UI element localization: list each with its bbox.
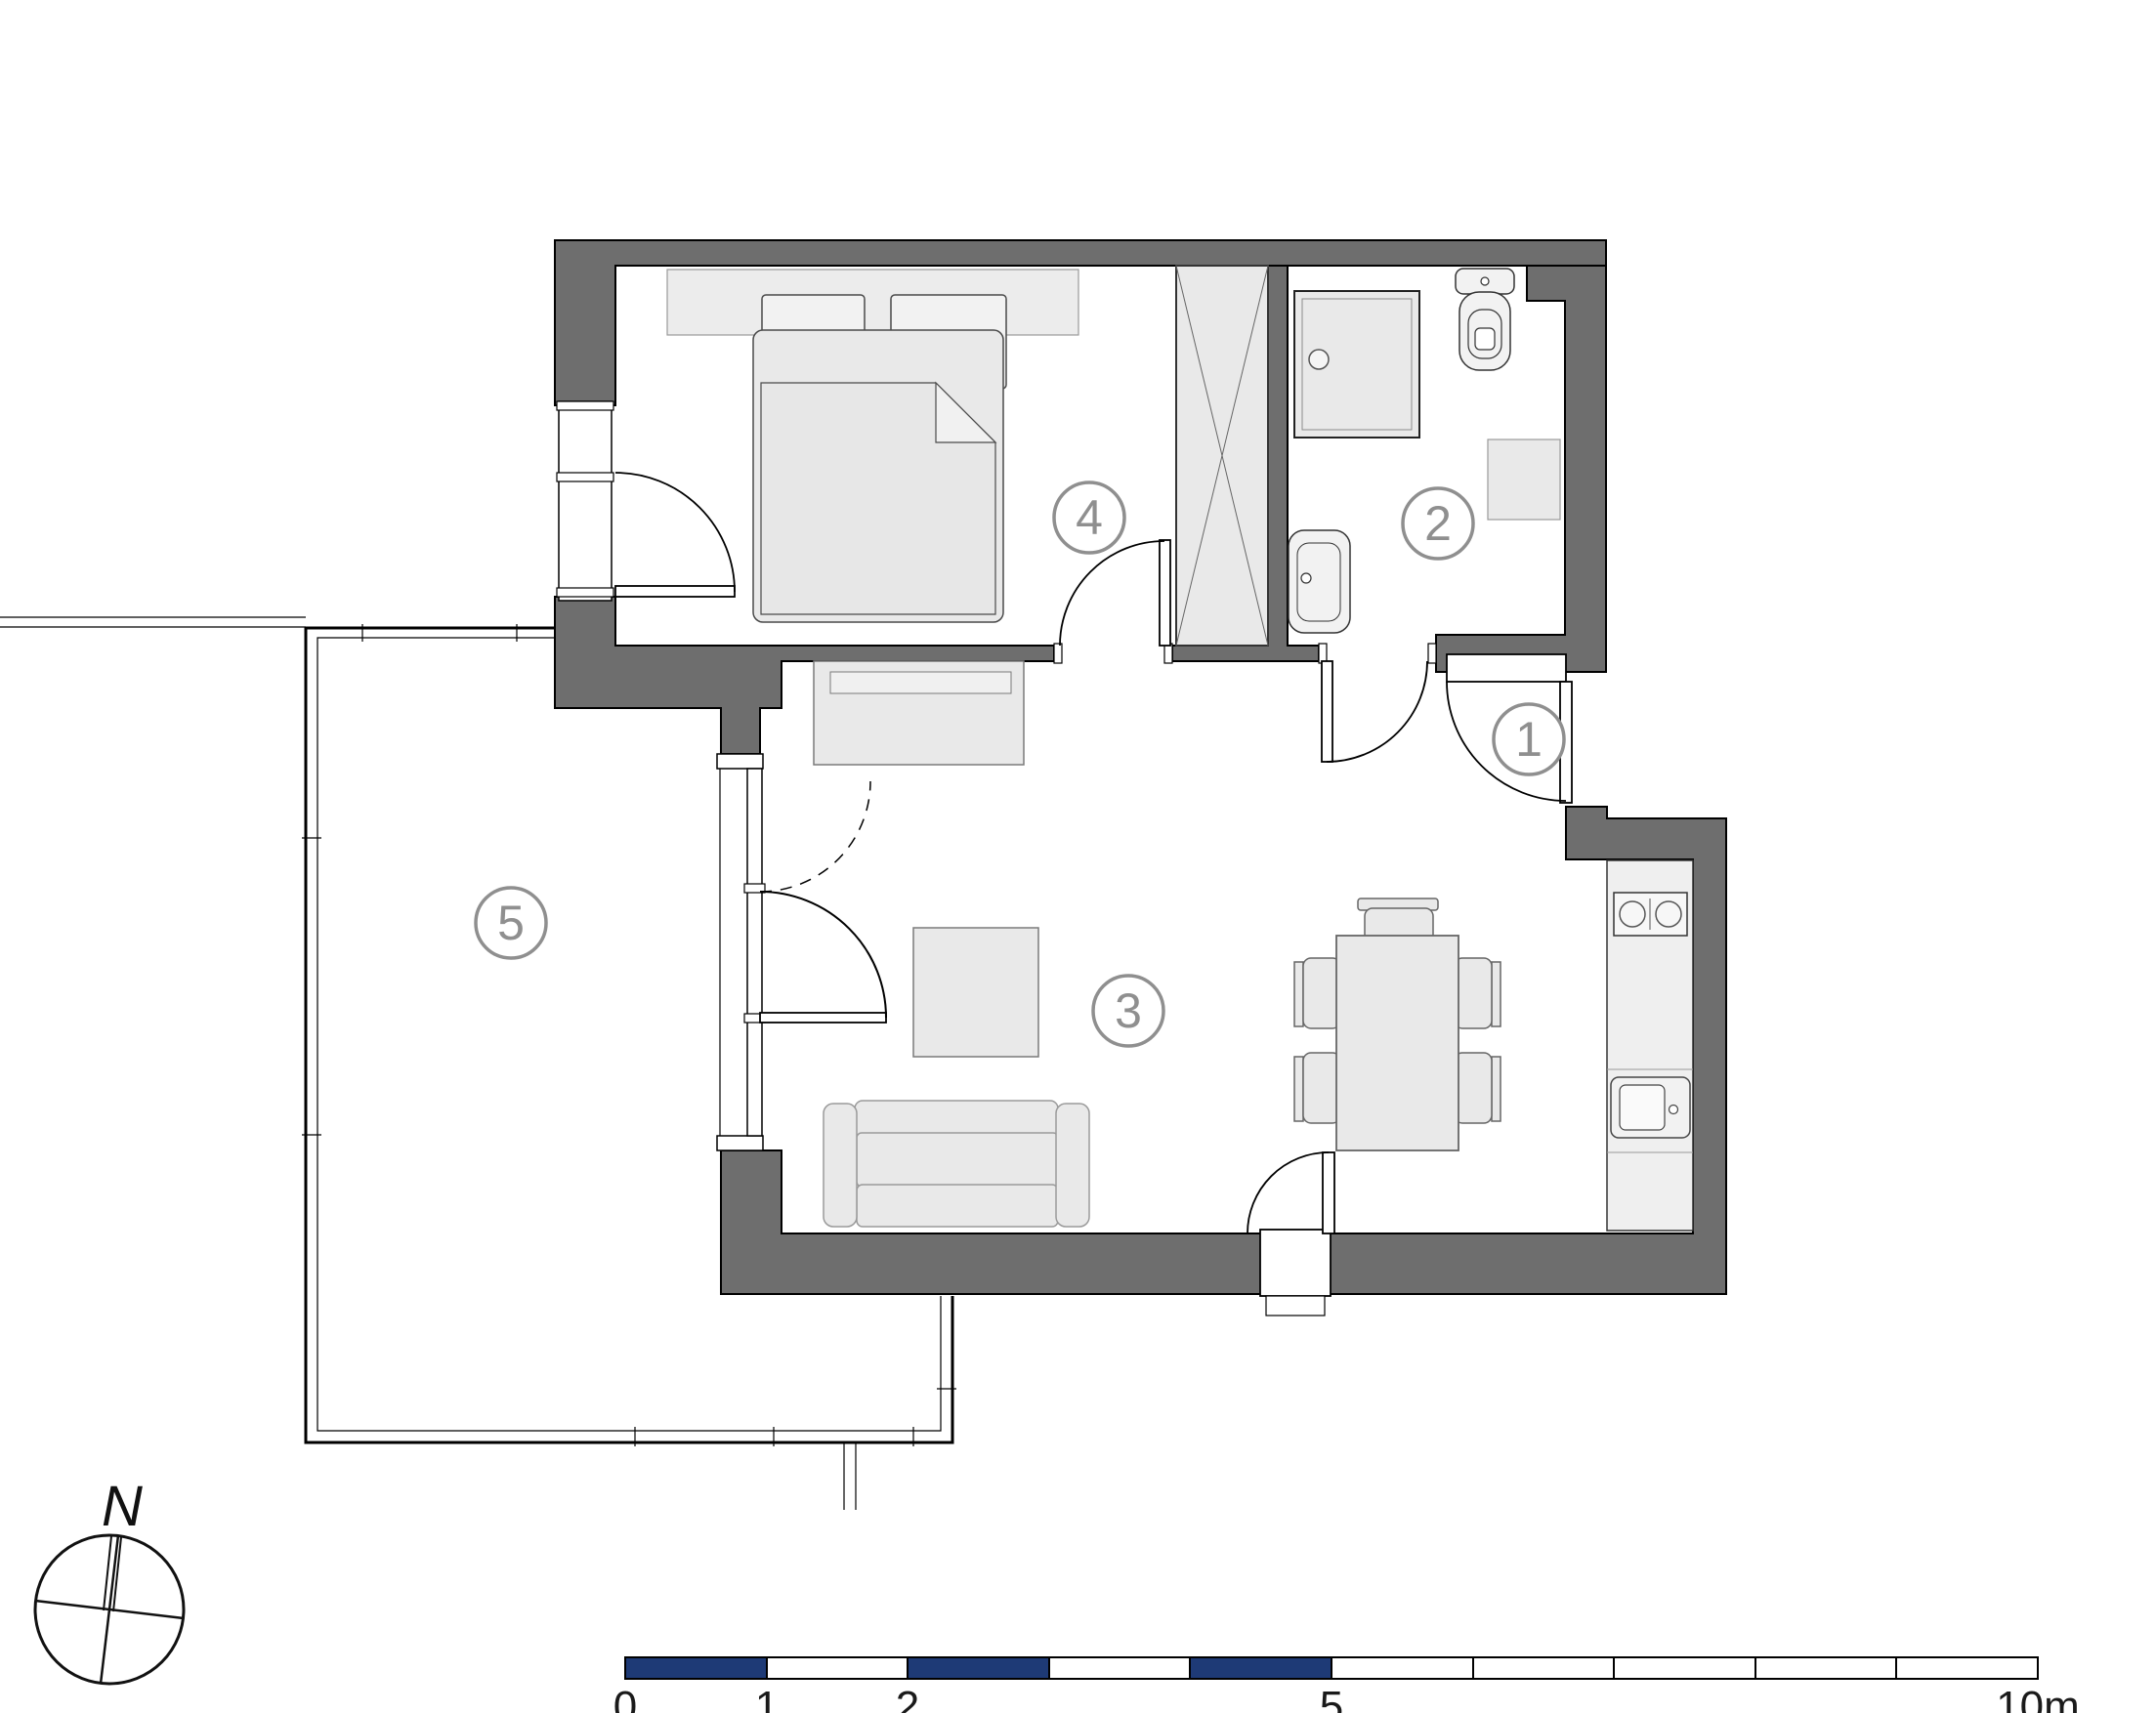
sideboard bbox=[814, 661, 1024, 765]
bedroom-door bbox=[1054, 540, 1172, 663]
dining-chair bbox=[1294, 1057, 1303, 1121]
scale-bar: 0 1 2 5 10m bbox=[613, 1657, 2080, 1713]
door-swing-arc bbox=[1327, 661, 1427, 762]
door-leaf bbox=[615, 586, 735, 597]
room-label-2: 2 bbox=[1403, 488, 1473, 559]
dining-chair bbox=[1492, 962, 1501, 1026]
wardrobe bbox=[1176, 266, 1268, 646]
room-number: 3 bbox=[1115, 983, 1142, 1038]
north-label: N bbox=[102, 1475, 143, 1538]
dining-chair bbox=[1492, 1057, 1501, 1121]
washing-machine bbox=[1488, 439, 1560, 520]
compass-rose: N bbox=[35, 1475, 184, 1684]
room-label-4: 4 bbox=[1054, 482, 1124, 553]
room-label-5: 5 bbox=[476, 888, 546, 958]
toilet bbox=[1456, 269, 1514, 370]
coffee-table bbox=[913, 928, 1038, 1057]
door-leaf bbox=[1323, 1152, 1334, 1233]
door-swing-arc bbox=[615, 473, 735, 592]
room-number: 1 bbox=[1515, 712, 1543, 767]
door-swing-arc bbox=[1060, 541, 1164, 646]
bathroom-sink bbox=[1289, 530, 1350, 633]
door-leaf bbox=[760, 1013, 886, 1023]
scale-tick-label: 0 bbox=[613, 1683, 637, 1713]
room-number: 4 bbox=[1076, 490, 1103, 545]
dining-chair bbox=[1455, 1053, 1492, 1123]
shower bbox=[1294, 291, 1419, 438]
door-swing-arc-dashed bbox=[760, 781, 870, 892]
dining-set bbox=[1294, 898, 1501, 1150]
scale-tick-label: 5 bbox=[1320, 1683, 1343, 1713]
door-leaf bbox=[1160, 540, 1170, 646]
scale-tick-label: 1 bbox=[755, 1683, 779, 1713]
scale-tick-label: 2 bbox=[896, 1683, 919, 1713]
balcony-door-bedroom bbox=[557, 401, 735, 601]
door-leaf bbox=[1322, 661, 1332, 762]
service-door bbox=[1247, 1152, 1334, 1316]
floor-plan-svg: 1 2 3 4 5 N bbox=[0, 0, 2156, 1713]
room-number: 2 bbox=[1424, 496, 1452, 551]
floor-plan-page: 1 2 3 4 5 N bbox=[0, 0, 2156, 1713]
room-label-3: 3 bbox=[1093, 976, 1163, 1046]
kitchen-sink bbox=[1611, 1077, 1690, 1138]
room-label-1: 1 bbox=[1494, 704, 1564, 774]
room-number: 5 bbox=[497, 896, 525, 950]
bathroom-fixtures bbox=[1289, 269, 1560, 633]
balcony-door-living bbox=[717, 754, 886, 1150]
dining-chair bbox=[1303, 958, 1340, 1028]
dining-chair bbox=[1294, 962, 1303, 1026]
dining-chair bbox=[1455, 958, 1492, 1028]
bedroom-furniture bbox=[667, 266, 1268, 646]
kitchen-counter bbox=[1607, 860, 1693, 1231]
sofa bbox=[824, 1101, 1089, 1227]
scale-tick-label: 10m bbox=[1996, 1683, 2080, 1713]
dining-chair bbox=[1303, 1053, 1340, 1123]
balcony-railing bbox=[0, 617, 956, 1510]
headboard-shelf bbox=[667, 270, 1078, 335]
entrance-threshold bbox=[1447, 654, 1566, 682]
cooktop bbox=[1614, 893, 1687, 936]
door-swing-arc bbox=[1247, 1152, 1329, 1233]
dining-table bbox=[1336, 936, 1458, 1150]
bathroom-door bbox=[1319, 644, 1436, 762]
door-swing-arc bbox=[760, 892, 886, 1018]
